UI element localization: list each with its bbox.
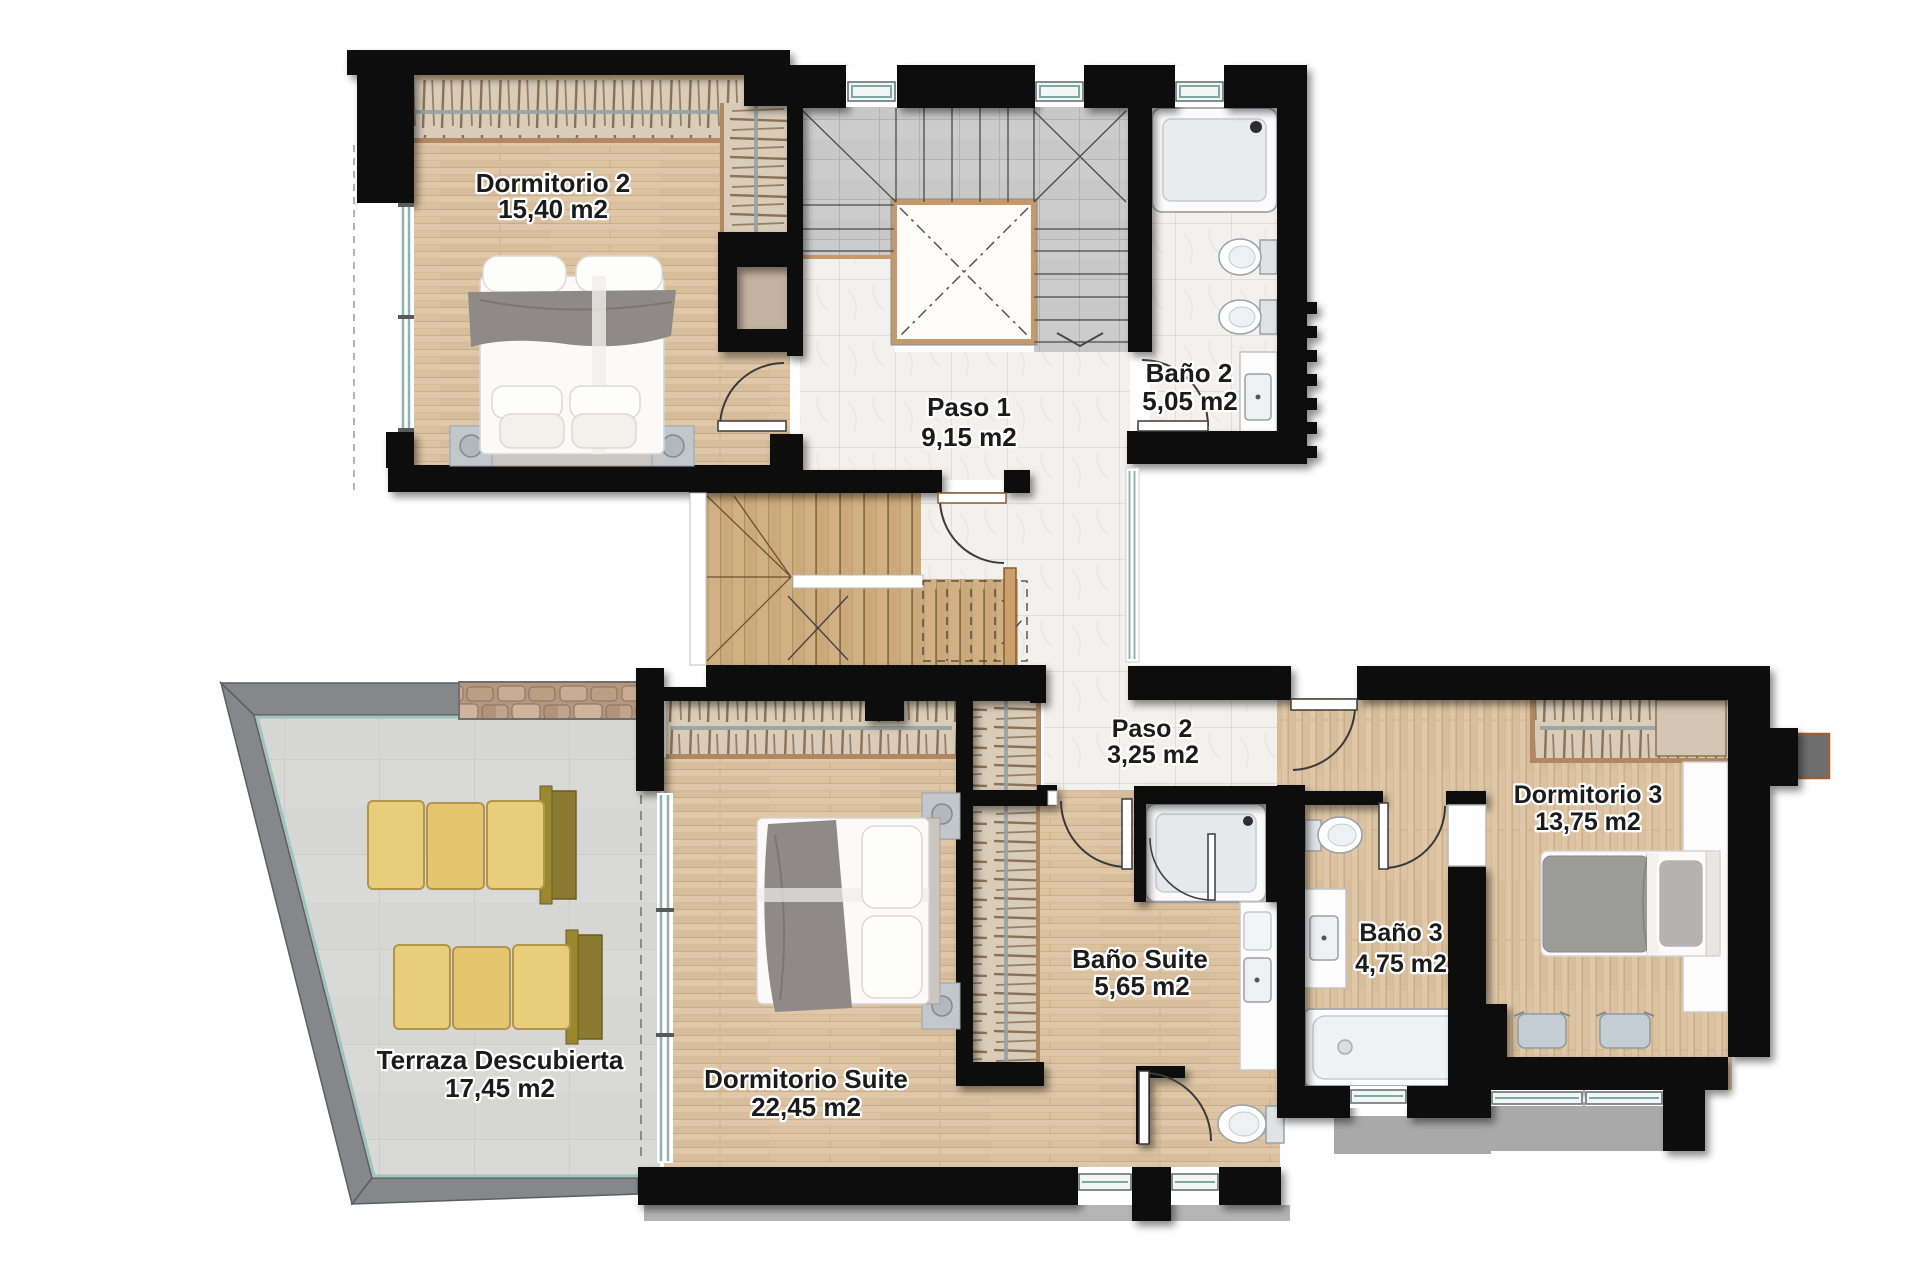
svg-text:5,05 m2: 5,05 m2 — [1142, 386, 1237, 416]
svg-text:5,65 m2: 5,65 m2 — [1094, 971, 1189, 1001]
svg-text:15,40 m2: 15,40 m2 — [498, 194, 608, 224]
svg-text:17,45 m2: 17,45 m2 — [445, 1073, 555, 1103]
svg-text:Baño Suite: Baño Suite — [1072, 944, 1208, 974]
svg-text:Terraza Descubierta: Terraza Descubierta — [377, 1045, 624, 1075]
svg-text:Dormitorio 3: Dormitorio 3 — [1514, 781, 1663, 809]
svg-text:13,75 m2: 13,75 m2 — [1535, 808, 1641, 836]
svg-text:Paso 1: Paso 1 — [927, 392, 1011, 422]
svg-text:Dormitorio Suite: Dormitorio Suite — [704, 1064, 908, 1094]
svg-text:22,45 m2: 22,45 m2 — [751, 1092, 861, 1122]
svg-text:4,75 m2: 4,75 m2 — [1355, 950, 1447, 978]
svg-text:Baño 3: Baño 3 — [1359, 919, 1442, 947]
svg-text:9,15 m2: 9,15 m2 — [921, 422, 1016, 452]
svg-text:3,25 m2: 3,25 m2 — [1107, 741, 1199, 769]
svg-text:Baño 2: Baño 2 — [1146, 358, 1233, 388]
svg-text:Paso 2: Paso 2 — [1112, 715, 1193, 743]
